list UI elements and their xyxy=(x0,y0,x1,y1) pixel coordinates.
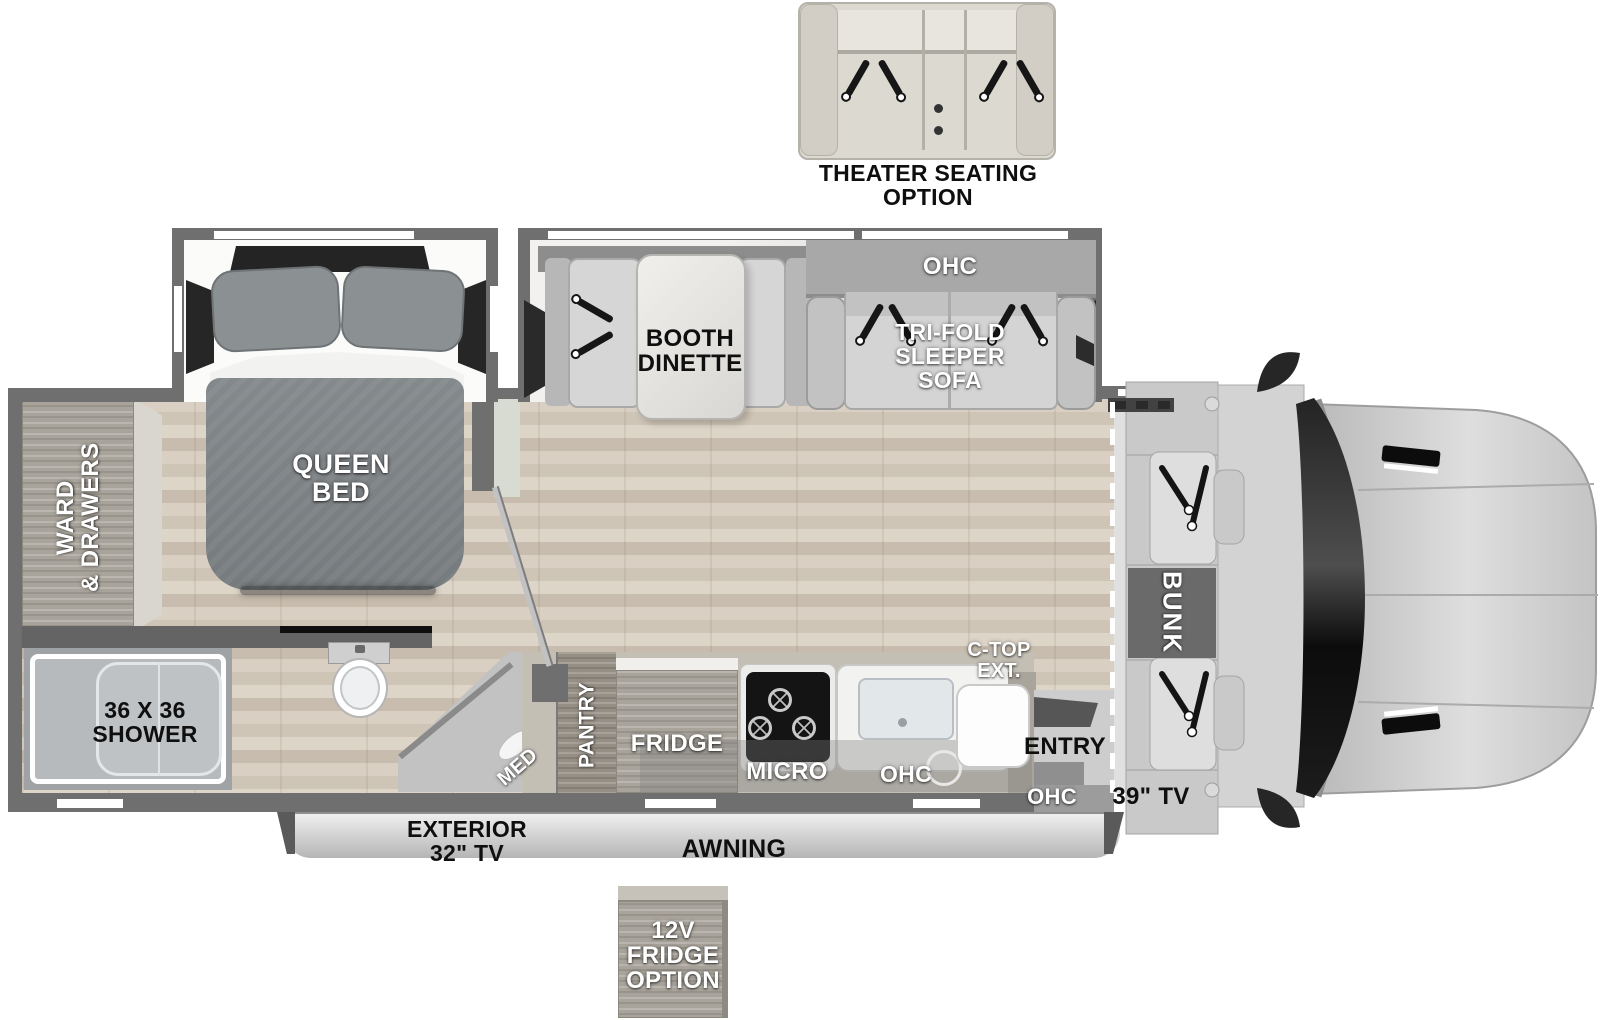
toilet-flush xyxy=(355,645,365,653)
kitchen-sink xyxy=(858,678,954,740)
seatbelt-icon xyxy=(976,54,1048,108)
bed-shadow xyxy=(240,586,436,595)
living-slide-top-window xyxy=(862,231,1068,239)
burner-icon xyxy=(768,688,792,712)
bed-pillow xyxy=(210,265,342,354)
ohc-kitchen-label: OHC xyxy=(856,762,956,786)
bottom-wall-window xyxy=(645,799,716,808)
bed-side-window xyxy=(186,280,214,374)
theater-sofa-divider xyxy=(922,10,925,150)
top-wall-left xyxy=(8,388,180,402)
faucet-icon xyxy=(898,718,907,727)
shower-label: 36 X 36 SHOWER xyxy=(70,698,220,746)
seatbelt-icon xyxy=(565,291,619,363)
cab-dashed-divider xyxy=(1110,402,1115,793)
fridge-12v-option-top xyxy=(618,886,728,902)
exterior-tv-label: EXTERIOR 32" TV xyxy=(398,817,536,865)
seatbelt-icon xyxy=(838,54,910,108)
door-pocket-panel xyxy=(494,399,520,497)
bottom-wall-window xyxy=(913,799,980,808)
rv-floorplan-diagram: THEATER SEATING OPTION xyxy=(0,0,1600,1020)
bottom-wall xyxy=(8,793,1034,812)
entry-label: ENTRY xyxy=(1020,734,1110,759)
pantry-label: PANTRY xyxy=(560,660,615,790)
wardrobe-cabinet-face xyxy=(134,399,162,631)
living-slide-top-window xyxy=(548,231,854,239)
theater-sofa-backrest xyxy=(806,10,1048,54)
bottom-wall-window xyxy=(57,799,123,808)
theater-sofa-arm-left xyxy=(800,4,838,156)
ward-drawers-label: WARD & DRAWERS xyxy=(30,425,126,610)
ctop-ext-label: C-TOP EXT. xyxy=(958,640,1040,682)
recline-button-icon xyxy=(934,104,943,113)
tv39-label: 39" TV xyxy=(1103,784,1199,809)
theater-sofa-divider xyxy=(964,10,967,150)
fridge-12v-label: 12V FRIDGE OPTION xyxy=(618,918,728,994)
ohc-living-label: OHC xyxy=(880,254,1020,279)
countertop-extension-flap xyxy=(956,684,1030,768)
bed-slide-wall-gap xyxy=(490,286,498,352)
micro-label: MICRO xyxy=(740,759,834,784)
burner-icon xyxy=(748,716,772,740)
bed-pillow xyxy=(340,265,466,353)
theater-seating-label: THEATER SEATING OPTION xyxy=(798,161,1058,209)
trifold-sofa-label: TRI-FOLD SLEEPER SOFA xyxy=(868,320,1032,392)
bedroom-door-wall-stub xyxy=(472,399,494,491)
ohc-entry-label: OHC xyxy=(1002,785,1102,808)
awning-end-cap xyxy=(277,812,295,854)
recline-button-icon xyxy=(934,126,943,135)
sofa-arm-left xyxy=(806,296,846,410)
awning-label: AWNING xyxy=(663,836,805,862)
burner-icon xyxy=(792,716,816,740)
fridge-label: FRIDGE xyxy=(617,731,737,756)
left-wall xyxy=(8,388,22,812)
toilet-seat xyxy=(340,666,380,710)
fridge-counter-top xyxy=(616,658,738,670)
bunk-label: BUNK xyxy=(1128,568,1216,658)
booth-dinette-label: BOOTH DINETTE xyxy=(628,326,752,376)
bath-vanity-edge xyxy=(280,626,432,633)
bed-slide-top-window xyxy=(214,231,414,239)
queen-bed-label: QUEEN BED xyxy=(276,450,406,507)
bed-slide-wall-gap xyxy=(174,286,182,352)
